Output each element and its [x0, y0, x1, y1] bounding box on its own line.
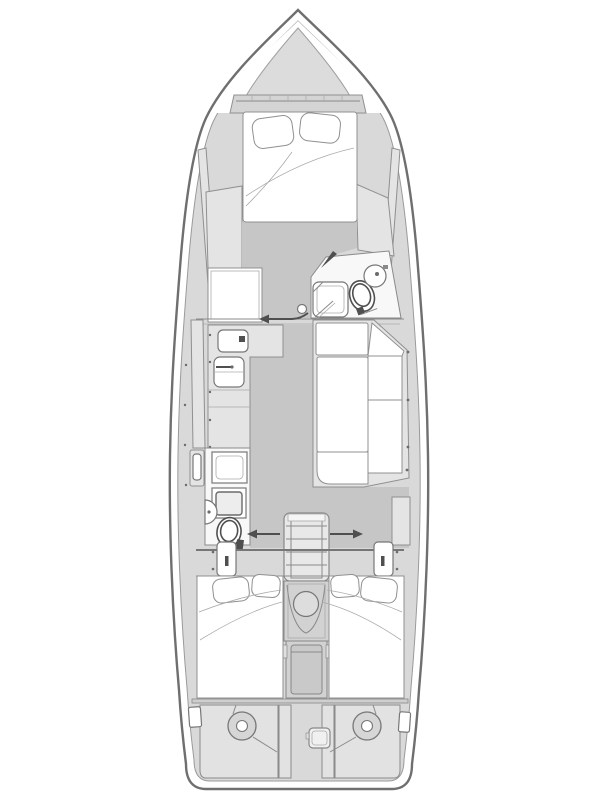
- starboard-locker: [392, 497, 410, 545]
- windlass-step-band: [230, 95, 366, 113]
- companionway: [283, 513, 330, 698]
- forward-shower-pan: [313, 282, 348, 317]
- door-handle: [225, 556, 229, 566]
- saloon-settee: [313, 320, 409, 487]
- stern-pocket-starboard: [398, 712, 410, 733]
- settee-back-cushion: [368, 400, 402, 473]
- stern-center-strip: [279, 705, 291, 778]
- galley-double-sink: [214, 357, 244, 387]
- pillow: [251, 114, 295, 149]
- floor-plan-drawing: [0, 0, 600, 800]
- pillow: [360, 576, 398, 604]
- engine-compartment: [284, 581, 329, 641]
- stern-bulkhead: [192, 699, 408, 703]
- aft-head-sink-unit: [212, 452, 247, 483]
- top-step: [288, 514, 325, 521]
- settee-seat-end: [317, 452, 368, 484]
- settee-corner-cushion: [316, 323, 368, 355]
- stern-pocket-port: [188, 707, 201, 728]
- galley-hull-strip: [191, 320, 205, 448]
- yacht-floor-plan: [0, 0, 600, 800]
- bow-area: [213, 21, 383, 113]
- door-knob: [298, 305, 307, 314]
- door-handle: [381, 556, 385, 566]
- forward-bench-port: [206, 186, 242, 268]
- pillow: [330, 574, 359, 598]
- settee-back-cushion: [368, 356, 402, 400]
- aft-head-hull-locker: [190, 450, 204, 486]
- settee-seat-cushion: [317, 357, 368, 452]
- emergency-tiller-plate: [306, 728, 330, 748]
- engine-hatch-porthole: [294, 592, 319, 617]
- galley-sink: [218, 330, 248, 352]
- pillow: [299, 112, 342, 144]
- engine-box-lower: [283, 641, 330, 698]
- port-dresser: [208, 268, 262, 322]
- pillow: [212, 576, 250, 604]
